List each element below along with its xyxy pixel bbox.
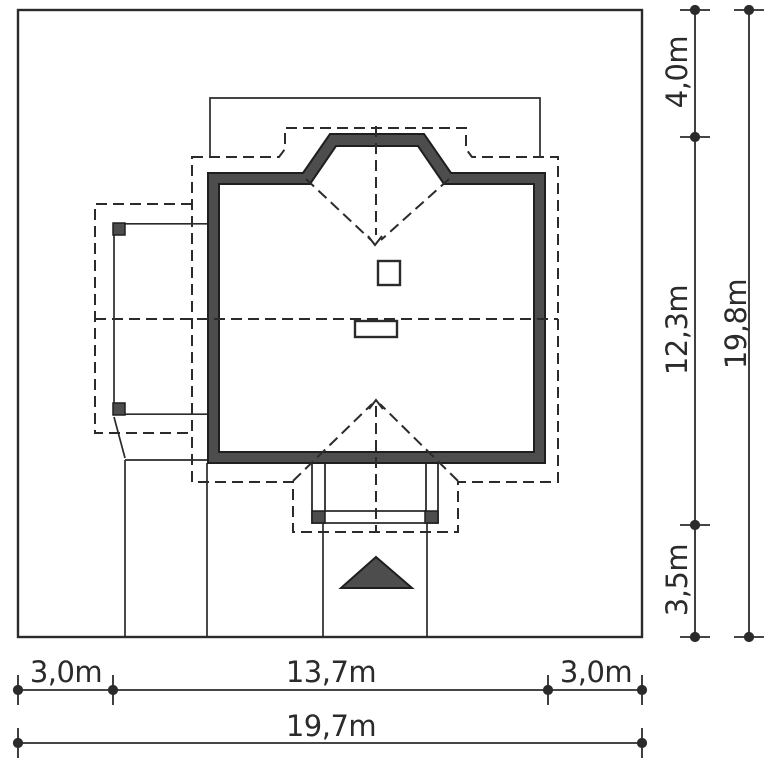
dimension-dot — [109, 686, 117, 694]
dimension-label-left-setback: 3,0m — [30, 655, 102, 689]
site-plan-drawing: 3,0m 13,7m 3,0m 19,7m 4,0m 12,3m 3,5m 19… — [0, 0, 770, 764]
dimension-label-house-depth: 12,3m — [660, 285, 694, 375]
dimension-label-plot-depth: 19,8m — [719, 279, 753, 369]
dimension-dot — [14, 686, 22, 694]
dimension-label-house-width: 13,7m — [286, 655, 376, 689]
dimension-dot — [14, 739, 22, 747]
dimension-dot — [544, 686, 552, 694]
plot-boundary — [18, 10, 642, 637]
dimension-dot — [691, 133, 699, 141]
carport-post — [113, 403, 125, 415]
chimney — [355, 321, 397, 337]
dimension-dot — [745, 633, 753, 641]
chimney — [378, 261, 400, 285]
porch-post — [312, 511, 325, 523]
porch-post — [425, 511, 438, 523]
dimension-dot — [691, 633, 699, 641]
dimension-label-rear-setback: 3,5m — [660, 544, 694, 616]
dimension-dot — [691, 6, 699, 14]
dimension-dot — [638, 739, 646, 747]
dimension-label-plot-width: 19,7m — [286, 709, 376, 743]
dimension-dot — [745, 6, 753, 14]
dimension-label-right-setback: 3,0m — [560, 655, 632, 689]
dimension-dot — [691, 521, 699, 529]
carport-post — [113, 223, 125, 235]
dimension-dot — [638, 686, 646, 694]
dimension-label-front-offset: 4,0m — [660, 36, 694, 108]
site-plan-page: 3,0m 13,7m 3,0m 19,7m 4,0m 12,3m 3,5m 19… — [0, 0, 770, 764]
